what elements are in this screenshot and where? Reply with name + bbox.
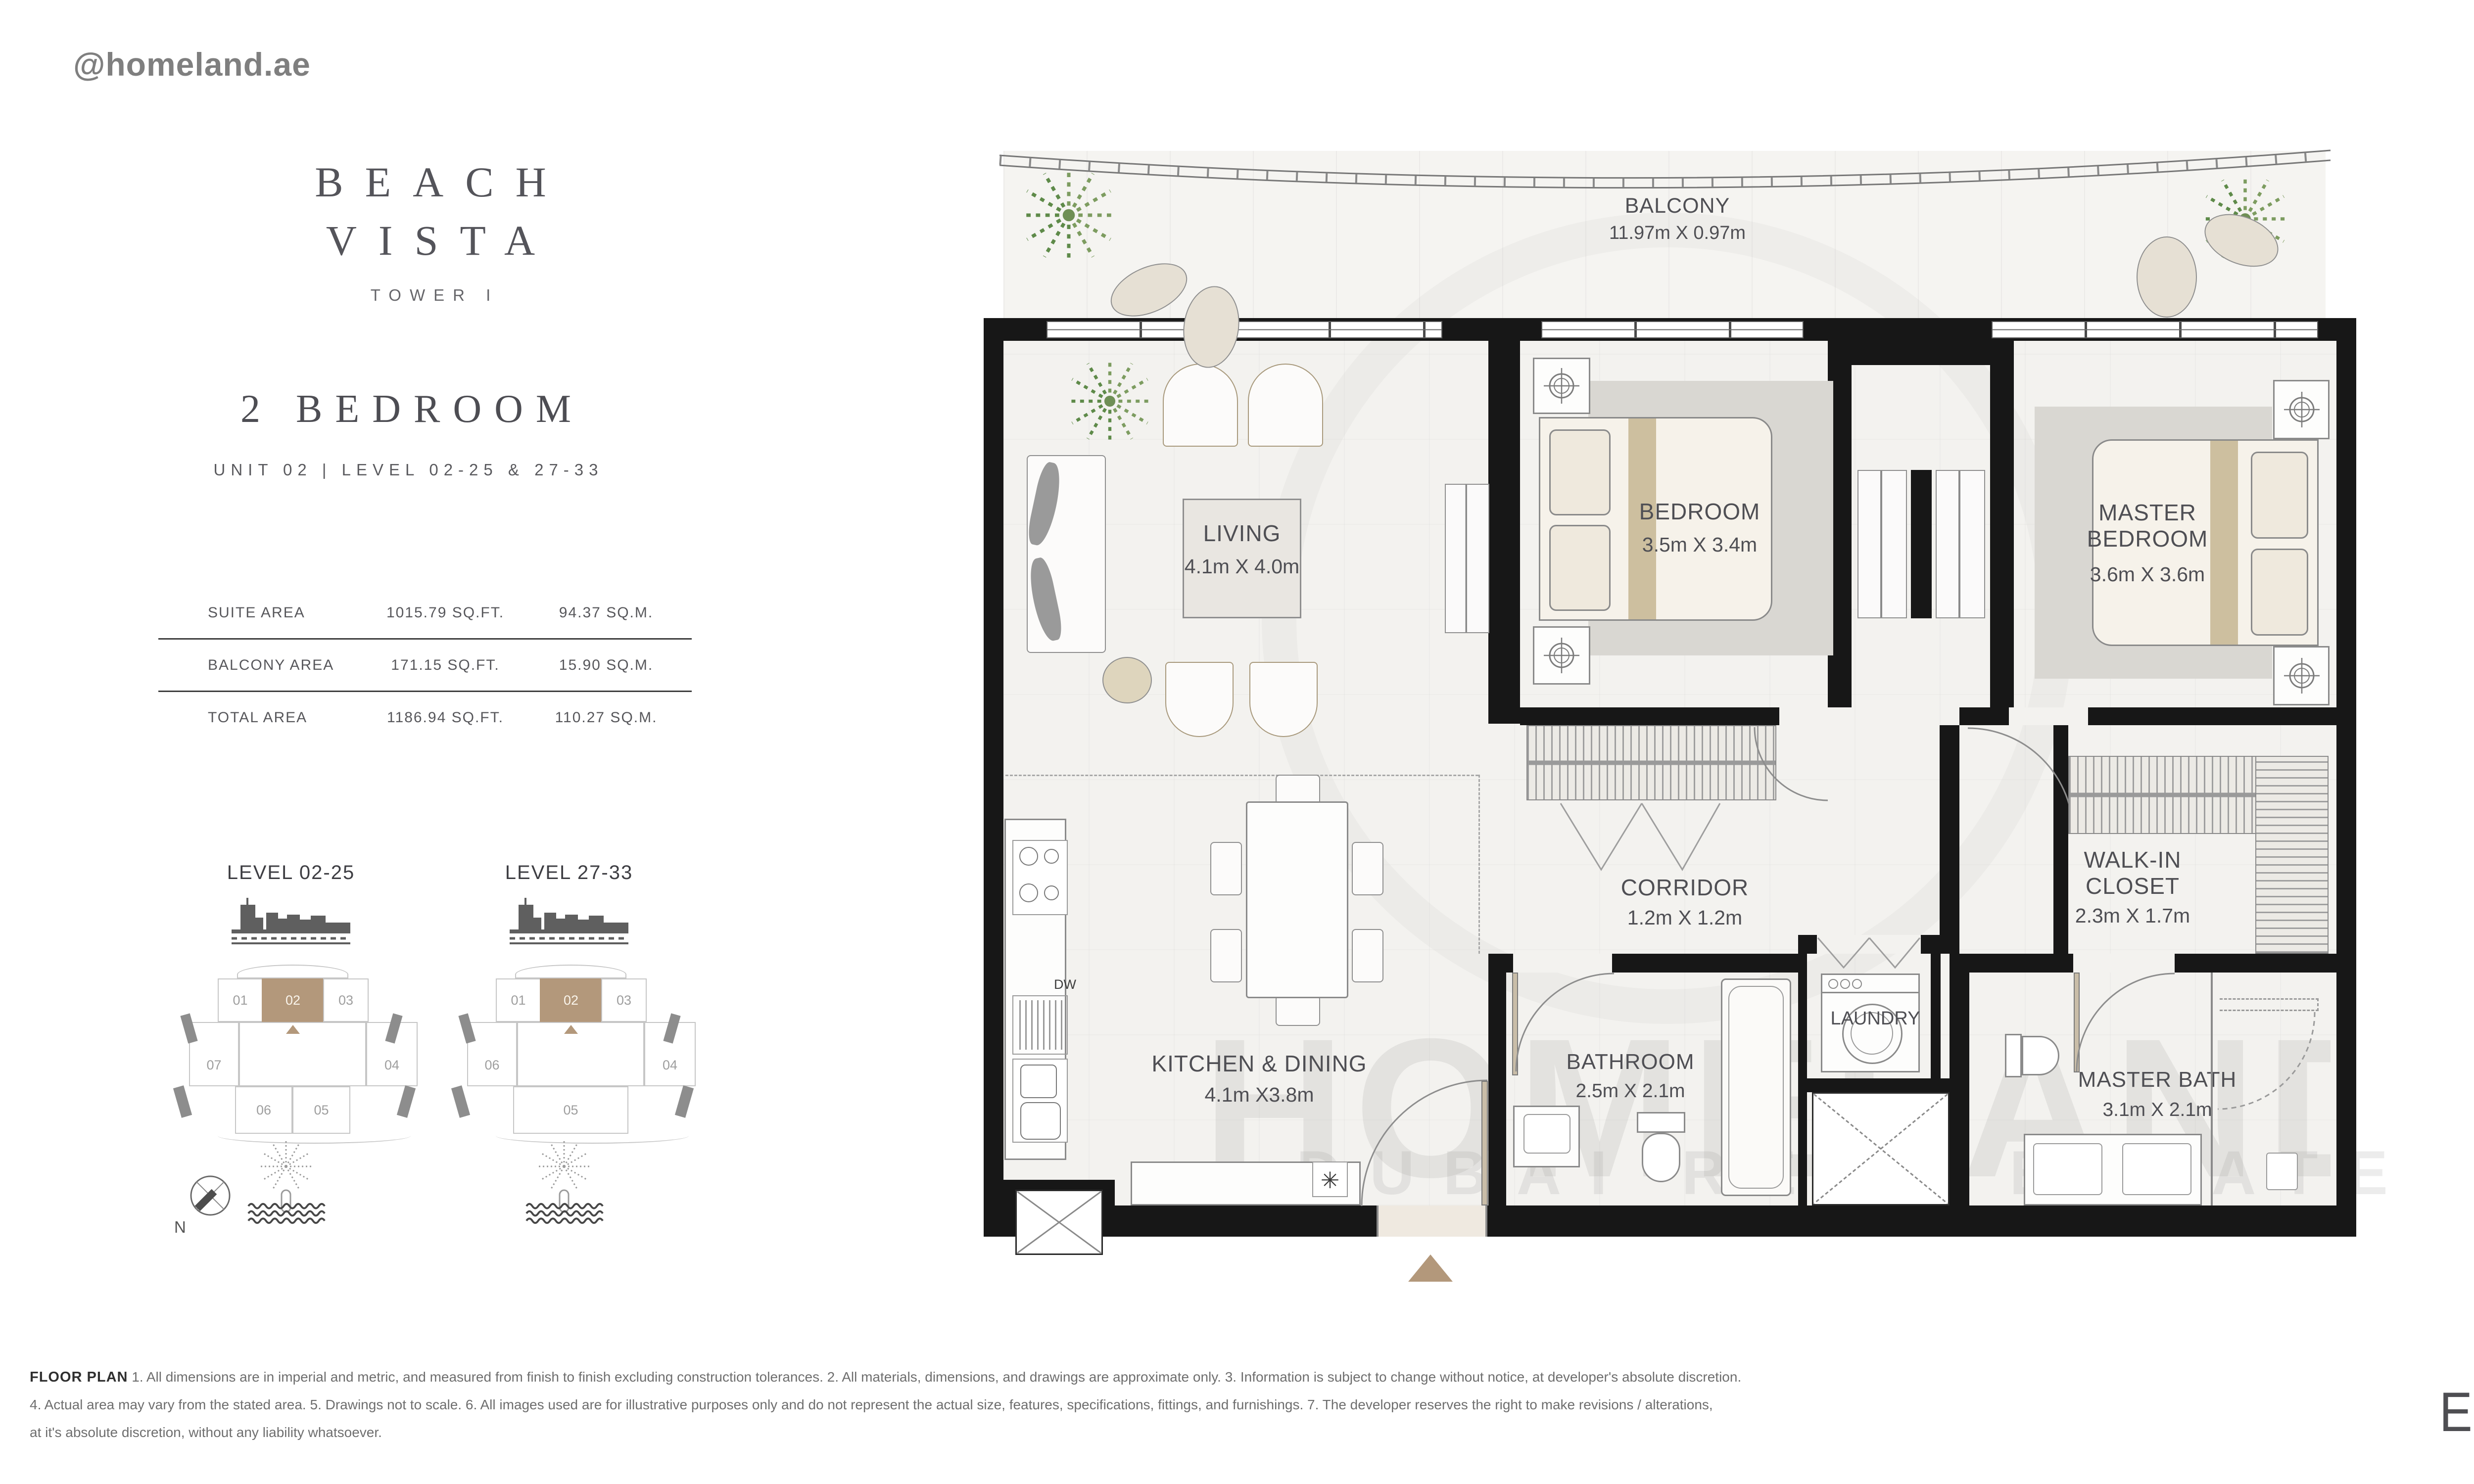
keyplan-title-02-25: LEVEL 02-25 (217, 862, 365, 884)
masterbath-door-opening (2073, 954, 2175, 973)
keyplan-unit-01: 01 (218, 978, 263, 1022)
keyplan-core (239, 1022, 366, 1086)
wall-master-left (1990, 340, 2014, 707)
toilet-bowl (1642, 1133, 1680, 1182)
area-row-label: SUITE AREA (208, 604, 366, 621)
developer-logo: EMAAR (2439, 1381, 2474, 1444)
skyline-icon (510, 898, 628, 944)
project-title: BEACH VISTA TOWER I (267, 157, 594, 305)
corridor-label: CORRIDOR (1578, 875, 1791, 901)
area-row-sqm: 15.90 SQ.M. (542, 657, 670, 674)
dashed-boundary-h (1005, 775, 1478, 776)
balcony-dims: 11.97m X 0.97m (1569, 223, 1786, 244)
wardrobe-panel (1857, 470, 1907, 618)
keyplan-balcony-stub (451, 1085, 470, 1118)
keyplan-unit-03: 03 (601, 978, 647, 1022)
sink-bowl (1020, 1102, 1061, 1140)
dining-chair (1210, 929, 1242, 982)
sink-basin (2122, 1143, 2191, 1195)
wall-right (2336, 318, 2356, 1237)
master-door-opening (2009, 707, 2088, 725)
burner (1044, 849, 1059, 864)
keyplan-unit-05: 05 (513, 1086, 628, 1134)
master-window (1992, 321, 2318, 338)
keyplan-unit-01: 01 (496, 978, 541, 1022)
waves-icon (525, 1202, 609, 1225)
area-row-sqm: 94.37 SQ.M. (542, 604, 670, 621)
palm-tree-icon (1017, 163, 1121, 267)
entry-door-leaf (1481, 1081, 1488, 1206)
disclaimer-line1: FLOOR PLAN 1. All dimensions are in impe… (30, 1369, 1741, 1386)
unit-type: 2 BEDROOM (208, 387, 604, 432)
wall-vestibule (1940, 725, 1959, 954)
living-window (1047, 321, 1442, 338)
bedroom-dims: 3.5m X 3.4m (1608, 533, 1791, 556)
corridor-dims: 1.2m X 1.2m (1578, 906, 1791, 929)
project-title-line1: BEACH (267, 157, 594, 207)
kitchen-label: KITCHEN & DINING (1123, 1051, 1395, 1077)
corridor-closet (1526, 725, 1776, 800)
dining-table (1246, 801, 1348, 998)
living-label: LIVING (1153, 520, 1331, 547)
project-title-line2: VISTA (267, 216, 594, 265)
compass-north-label: N (174, 1218, 186, 1237)
bathroom-door-opening (1513, 954, 1612, 973)
lamp-icon (1542, 636, 1581, 675)
door-arc (1515, 973, 1615, 1072)
dining-chair (1276, 775, 1320, 805)
keyplan-unit-06: 06 (235, 1086, 292, 1134)
wall-bottom (984, 1206, 2356, 1237)
burner (1044, 885, 1059, 900)
keyplan-unit-02-highlighted: 02 (262, 978, 324, 1022)
area-row-sqft: 1015.79 SQ.FT. (376, 604, 515, 621)
toilet-tank (2005, 1034, 2022, 1077)
pillow (2251, 452, 2308, 539)
area-row-sqft: 1186.94 SQ.FT. (376, 709, 515, 726)
keyplan-entry-arrow (564, 1025, 578, 1034)
wall-living-bedroom (1488, 340, 1520, 724)
wall-wardrobe-mid (1911, 470, 1932, 618)
unit-type-block: 2 BEDROOM UNIT 02 | LEVEL 02-25 & 27-33 (208, 387, 604, 479)
tv-console (1445, 484, 1489, 633)
shaft-x (1812, 1092, 1950, 1206)
side-table (1102, 657, 1152, 703)
keyplan-title-27-33: LEVEL 27-33 (495, 862, 643, 884)
pillow (2251, 549, 2308, 636)
keyplan-balcony-strip (515, 965, 626, 978)
bathtub-inner (1728, 986, 1784, 1189)
bedroom-door-opening (1779, 707, 1828, 725)
area-row-sqm: 110.27 SQ.M. (542, 709, 670, 726)
vanity-counter (2024, 1134, 2202, 1206)
pillow (1549, 525, 1611, 611)
entry-sill (1377, 1206, 1487, 1237)
dishwasher-label: DW (1054, 977, 1076, 992)
keyplan-unit-03: 03 (323, 978, 369, 1022)
dishwasher (1012, 995, 1068, 1055)
walkin-wardrobe (2255, 756, 2329, 954)
sofa-cushion (1025, 461, 1065, 548)
vent-icon: ✳ (1312, 1161, 1348, 1197)
bifold-doors (1559, 801, 1722, 873)
dashed-boundary-v (1478, 775, 1480, 954)
lamp-icon (1542, 366, 1581, 406)
bathroom-dims: 2.5m X 2.1m (1534, 1080, 1727, 1102)
door-arc (2076, 973, 2176, 1072)
wall-bathroom-right (1798, 935, 1807, 1206)
entry-arrow (1408, 1254, 1453, 1282)
washer-panel-line (1822, 992, 1918, 993)
shower-door-dashed (2220, 998, 2319, 1011)
keyplan-balcony-strip (237, 965, 348, 978)
keyplan-unit-07: 07 (189, 1022, 239, 1086)
armchair (1165, 662, 1234, 737)
disclaimer-heading: FLOOR PLAN (30, 1369, 128, 1385)
area-row-label: BALCONY AREA (208, 657, 366, 674)
dining-chair (1276, 995, 1320, 1026)
wall-bathroom-left (1488, 954, 1506, 1206)
entry-door-arc (1361, 1079, 1489, 1207)
walkin-dims: 2.3m X 1.7m (2073, 904, 2192, 927)
balcony-label: BALCONY (1569, 194, 1786, 218)
master-bedroom-label: MASTER BEDROOM (2068, 500, 2227, 552)
shower-door-arc (2217, 1011, 2316, 1110)
toilet-tank (1637, 1112, 1685, 1133)
disclaimer-line2: 4. Actual area may vary from the stated … (30, 1397, 1713, 1413)
bathroom-sink (1513, 1106, 1580, 1167)
disclaimer-text1: 1. All dimensions are in imperial and me… (132, 1369, 1741, 1385)
compass-icon (180, 1165, 241, 1226)
bedroom-window (1541, 321, 1804, 338)
kitchen-sink (1012, 1059, 1068, 1143)
stove (1012, 840, 1068, 915)
balcony-furniture (2137, 236, 2197, 318)
washer-knob (1840, 979, 1850, 989)
bedroom-label: BEDROOM (1608, 499, 1791, 525)
dining-chair (1210, 842, 1242, 895)
lamp-icon (2282, 656, 2322, 696)
wall-wardrobe-top (1852, 340, 1990, 365)
keyplan-balcony-stub (173, 1085, 192, 1118)
area-row-sqft: 171.15 SQ.FT. (376, 657, 515, 674)
keyplan-core (517, 1022, 644, 1086)
master-bedroom-dims: 3.6m X 3.6m (2068, 563, 2227, 586)
skyline-icon (232, 898, 350, 944)
burner (1019, 847, 1038, 866)
wall-shaft-right (1950, 954, 1969, 1206)
shower-partition (2211, 973, 2213, 1206)
door-arc (1967, 727, 2074, 835)
keyplan-unit-02-highlighted: 02 (540, 978, 602, 1022)
armchair (1249, 662, 1318, 737)
bathtub (1721, 978, 1791, 1196)
table-divider (158, 638, 692, 640)
armchair (1163, 364, 1238, 447)
project-tower: TOWER I (267, 286, 594, 305)
sofa-cushion (1025, 556, 1065, 643)
keyplan-unit-05: 05 (292, 1086, 350, 1134)
waves-icon (247, 1202, 331, 1225)
wall-shaft-top (1807, 1078, 1959, 1092)
door-arc (1754, 726, 1829, 801)
washer-knob (1852, 979, 1862, 989)
dining-chair (1352, 929, 1383, 982)
pillow (1549, 429, 1611, 515)
living-dims: 4.1m X 4.0m (1153, 555, 1331, 578)
bifold-doors (1817, 936, 1921, 972)
dining-chair (1352, 842, 1383, 895)
burner (1019, 883, 1038, 902)
keyplan-entry-arrow (286, 1025, 300, 1034)
sink-bowl (1020, 1065, 1057, 1098)
walkin-label: WALK-IN CLOSET (2073, 847, 2192, 899)
wardrobe-panel (1936, 470, 1985, 618)
table-divider (158, 691, 692, 692)
kitchen-dims: 4.1m X3.8m (1123, 1083, 1395, 1107)
lamp-icon (2282, 390, 2322, 429)
sofa (1027, 455, 1106, 653)
washer-knob (1828, 979, 1838, 989)
shower-head (2266, 1153, 2298, 1190)
unit-info: UNIT 02 | LEVEL 02-25 & 27-33 (208, 461, 604, 479)
sink-basin (1523, 1114, 1570, 1154)
disclaimer-line3: at it's absolute discretion, without any… (30, 1425, 382, 1440)
keyplan-unit-06: 06 (467, 1022, 517, 1086)
area-row-label: TOTAL AREA (208, 709, 366, 726)
laundry-label: LAUNDRY (1811, 1008, 1940, 1029)
wall-left (984, 318, 1003, 1237)
armchair (1248, 364, 1323, 447)
plant-icon (1063, 354, 1157, 448)
sink-basin (2033, 1143, 2102, 1195)
brand-handle: @homeland.ae (73, 46, 311, 83)
shaft-x (1015, 1190, 1103, 1255)
